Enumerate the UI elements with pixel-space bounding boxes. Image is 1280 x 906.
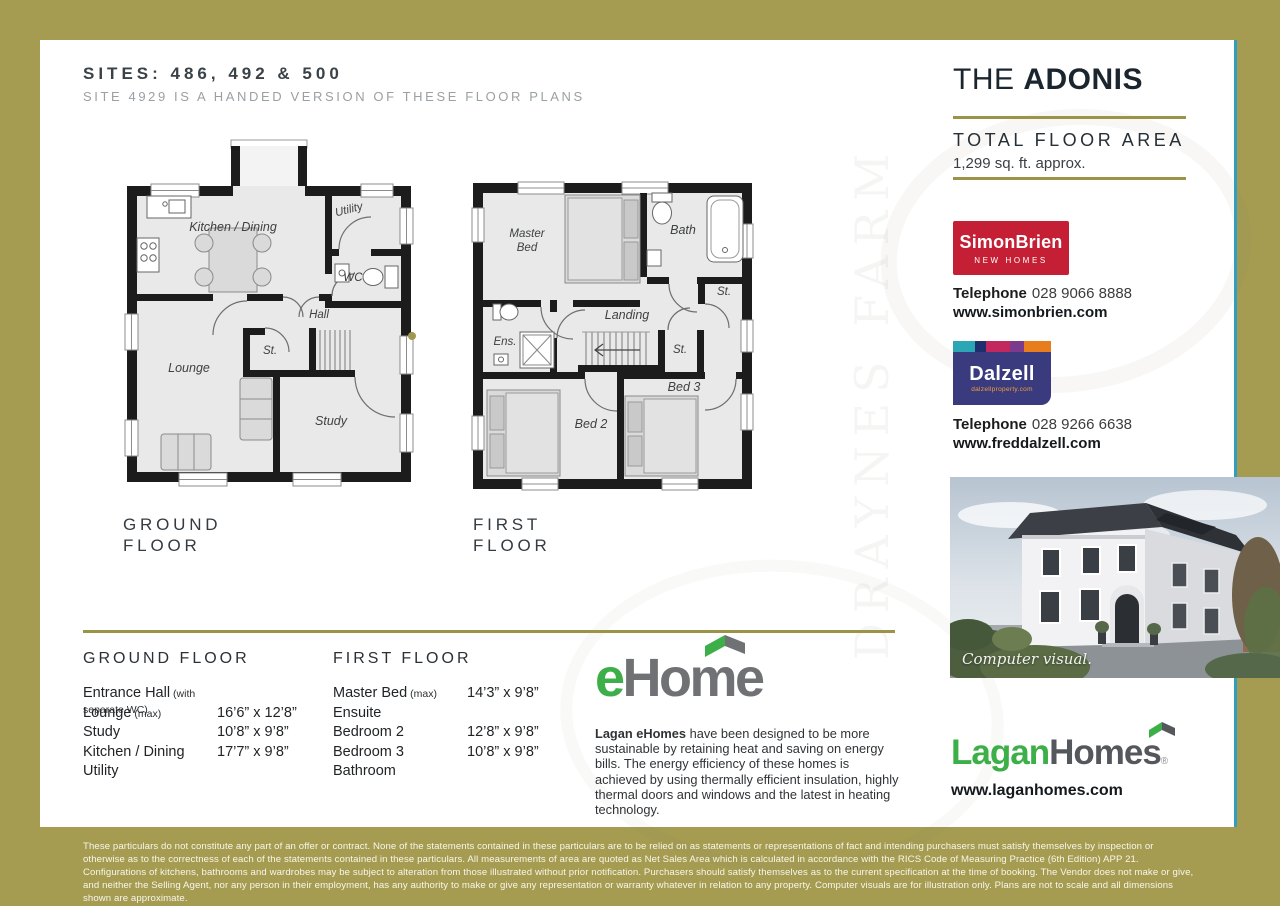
spec-row: Lounge(max) 16’6” x 12’8” bbox=[83, 705, 333, 725]
room-name: Study bbox=[83, 724, 217, 740]
room-name: Master Bed(max) bbox=[333, 685, 467, 701]
lagan-book-icon bbox=[1147, 719, 1177, 744]
ground-floor-caption: GROUND FLOOR bbox=[123, 514, 221, 556]
first-floor-plan: Master Bed Bath St. Landing Ens. St. Bed… bbox=[470, 180, 755, 492]
room-label-landing: Landing bbox=[605, 308, 650, 322]
room-name: Lounge(max) bbox=[83, 705, 217, 721]
sites-subtitle: SITE 4929 IS A HANDED VERSION OF THESE F… bbox=[83, 89, 585, 104]
first-floor-caption: FIRST FLOOR bbox=[473, 514, 551, 556]
hob bbox=[137, 238, 159, 272]
house-type-title: THE ADONIS bbox=[953, 63, 1143, 97]
dalzell-logo: Dalzell dalzellproperty.com bbox=[953, 341, 1051, 405]
ground-floor-plan-drawing bbox=[123, 138, 415, 490]
room-name: Bathroom bbox=[333, 763, 467, 779]
simonbrien-logo: SimonBrien NEW HOMES bbox=[953, 221, 1069, 275]
room-label-ensuite: Ens. bbox=[493, 336, 516, 348]
room-label-store-right: St. bbox=[717, 286, 731, 298]
house-render bbox=[950, 477, 1280, 678]
spec-row: Bedroom 2 12’8” x 9’8” bbox=[333, 724, 583, 744]
room-label-master-bed: Master Bed bbox=[501, 228, 553, 256]
ehome-description: Lagan eHomes have been designed to be mo… bbox=[595, 726, 902, 817]
stairs bbox=[320, 330, 350, 370]
dalzell-telephone: Telephone028 9266 6638 bbox=[953, 416, 1132, 433]
olive-rule bbox=[953, 177, 1186, 180]
room-label-store-mid: St. bbox=[673, 344, 687, 356]
lagan-wordmark-homes: Homes bbox=[1049, 733, 1161, 772]
registered-trademark: ® bbox=[1161, 756, 1168, 767]
ground-floor-specs: GROUND FLOOR Entrance Hall(with separate… bbox=[83, 650, 333, 783]
room-dimensions: 10’8” x 9’8” bbox=[467, 744, 583, 760]
room-label-bed2: Bed 2 bbox=[575, 417, 608, 431]
lagan-wordmark-lagan: Lagan bbox=[951, 733, 1049, 772]
room-name: Bedroom 3 bbox=[333, 744, 467, 760]
spec-row: Entrance Hall(with separate WC) bbox=[83, 685, 333, 705]
room-label-kitchen-dining: Kitchen / Dining bbox=[189, 220, 277, 234]
room-label-hall: Hall bbox=[309, 309, 329, 321]
dalzell-website-link[interactable]: www.freddalzell.com bbox=[953, 435, 1101, 452]
total-floor-area-value: 1,299 sq. ft. approx. bbox=[953, 155, 1086, 172]
room-label-lounge: Lounge bbox=[168, 361, 210, 375]
ground-floor-plan: Kitchen / Dining Utility WC Hall St. Lou… bbox=[123, 138, 415, 490]
olive-rule bbox=[83, 630, 895, 633]
master-bed-furniture bbox=[565, 195, 640, 283]
spec-row: Kitchen / Dining 17’7” x 9’8” bbox=[83, 744, 333, 764]
room-dimensions: 12’8” x 9’8” bbox=[467, 724, 583, 740]
room-label-bath: Bath bbox=[670, 223, 696, 237]
sites-title: SITES: 486, 492 & 500 bbox=[83, 64, 343, 84]
ehome-logo: eHome bbox=[595, 648, 902, 712]
house-computer-visual: Computer visual. bbox=[950, 477, 1280, 678]
ehome-section: eHome Lagan eHomes have been designed to… bbox=[595, 648, 902, 817]
spec-row: Bathroom bbox=[333, 763, 583, 783]
spec-row: Bedroom 3 10’8” x 9’8” bbox=[333, 744, 583, 764]
lagan-website-link[interactable]: www.laganhomes.com bbox=[951, 782, 1123, 800]
olive-rule bbox=[953, 116, 1186, 119]
room-dimensions: 14’3” x 9’8” bbox=[467, 685, 583, 701]
legal-disclaimer: These particulars do not constitute any … bbox=[83, 841, 1197, 906]
room-dimensions: 16’6” x 12’8” bbox=[217, 705, 333, 721]
simonbrien-website-link[interactable]: www.simonbrien.com bbox=[953, 304, 1107, 321]
total-floor-area-label: TOTAL FLOOR AREA bbox=[953, 130, 1185, 151]
room-name: Kitchen / Dining bbox=[83, 744, 217, 760]
bed3-furniture bbox=[625, 396, 698, 476]
room-name: Utility bbox=[83, 763, 217, 779]
room-name: Bedroom 2 bbox=[333, 724, 467, 740]
watermark-text: DRAYNES FARM bbox=[845, 330, 899, 660]
olive-dot-marker bbox=[408, 332, 416, 340]
room-label-wc: WC bbox=[343, 272, 362, 284]
room-name: Ensuite bbox=[333, 705, 467, 721]
first-floor-specs: FIRST FLOOR Master Bed(max) 14’3” x 9’8”… bbox=[333, 650, 583, 783]
kitchen-sink-unit bbox=[147, 196, 191, 218]
ehome-book-icon bbox=[703, 630, 747, 665]
spec-row: Master Bed(max) 14’3” x 9’8” bbox=[333, 685, 583, 705]
simonbrien-telephone: Telephone028 9066 8888 bbox=[953, 285, 1132, 302]
room-label-study: Study bbox=[315, 414, 347, 428]
room-dimensions: 17’7” x 9’8” bbox=[217, 744, 333, 760]
room-label-store: St. bbox=[263, 345, 277, 357]
dalzell-logo-color-strip bbox=[953, 341, 1051, 352]
room-label-bed3: Bed 3 bbox=[668, 380, 701, 394]
ehome-wordmark-e: e bbox=[595, 648, 623, 708]
room-dimensions: 10’8” x 9’8” bbox=[217, 724, 333, 740]
specs-heading: FIRST FLOOR bbox=[333, 650, 583, 668]
specs-heading: GROUND FLOOR bbox=[83, 650, 333, 668]
photo-caption: Computer visual. bbox=[962, 650, 1092, 668]
spec-row: Utility bbox=[83, 763, 333, 783]
spec-row: Ensuite bbox=[333, 705, 583, 725]
lagan-homes-logo: LaganHomes® bbox=[951, 727, 1168, 779]
teal-divider-line bbox=[1234, 40, 1237, 827]
bed2-furniture bbox=[487, 390, 560, 476]
spec-row: Study 10’8” x 9’8” bbox=[83, 724, 333, 744]
